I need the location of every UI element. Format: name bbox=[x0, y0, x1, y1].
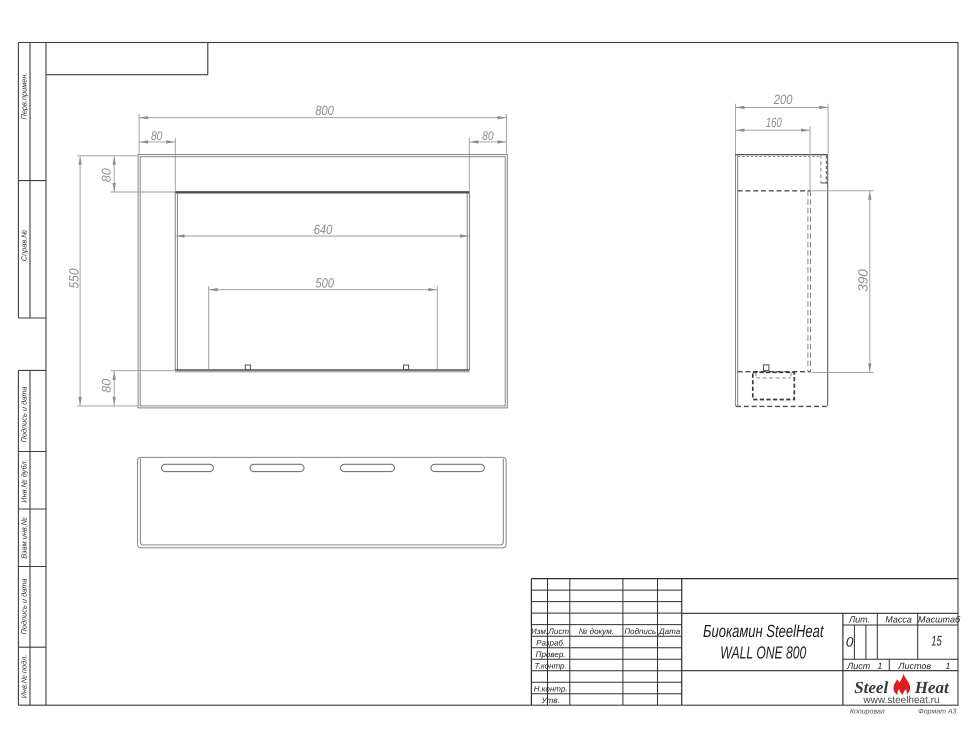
svg-text:Масштаб: Масштаб bbox=[918, 615, 961, 625]
svg-text:Дата: Дата bbox=[658, 627, 681, 636]
svg-text:Масса: Масса bbox=[885, 615, 912, 625]
svg-text:Подпись и дата: Подпись и дата bbox=[20, 387, 29, 443]
svg-text:Копировал: Копировал bbox=[850, 709, 885, 716]
svg-text:Т.контр.: Т.контр. bbox=[534, 661, 566, 670]
svg-text:Изм.: Изм. bbox=[531, 627, 548, 636]
svg-text:80: 80 bbox=[99, 168, 113, 182]
svg-text:Перв.примен.: Перв.примен. bbox=[20, 72, 29, 119]
svg-text:80: 80 bbox=[99, 379, 113, 393]
svg-text:800: 800 bbox=[315, 103, 334, 118]
svg-text:Инв.№ подл.: Инв.№ подл. bbox=[20, 655, 29, 699]
svg-text:80: 80 bbox=[482, 129, 494, 143]
svg-text:Лист: Лист bbox=[846, 661, 871, 671]
svg-text:Взам.инв.№: Взам.инв.№ bbox=[20, 517, 29, 559]
svg-text:Формат А3: Формат А3 bbox=[918, 709, 956, 716]
svg-text:390: 390 bbox=[856, 269, 871, 292]
svg-text:550: 550 bbox=[66, 268, 81, 288]
svg-text:Подпись и дата: Подпись и дата bbox=[20, 579, 29, 635]
svg-text:WALL ONE 800: WALL ONE 800 bbox=[720, 643, 806, 663]
svg-text:www.steelheat.ru: www.steelheat.ru bbox=[862, 695, 939, 706]
svg-text:Провер.: Провер. bbox=[536, 650, 566, 659]
svg-text:80: 80 bbox=[151, 129, 163, 143]
svg-text:Биокамин SteelHeat: Биокамин SteelHeat bbox=[703, 621, 824, 641]
svg-text:Н.контр.: Н.контр. bbox=[534, 684, 568, 693]
svg-text:Справ.№: Справ.№ bbox=[20, 230, 29, 262]
svg-text:200: 200 bbox=[773, 92, 793, 107]
svg-text:Инв.№ дубл.: Инв.№ дубл. bbox=[20, 459, 29, 502]
svg-text:15: 15 bbox=[931, 633, 942, 649]
svg-text:Листов: Листов bbox=[897, 661, 931, 671]
svg-text:№ докум.: № докум. bbox=[579, 627, 614, 636]
svg-text:640: 640 bbox=[314, 222, 333, 237]
svg-text:0: 0 bbox=[846, 635, 854, 650]
svg-text:Лист: Лист bbox=[547, 627, 569, 636]
svg-text:Лит.: Лит. bbox=[848, 615, 870, 625]
svg-text:Утв.: Утв. bbox=[541, 696, 560, 705]
svg-text:500: 500 bbox=[315, 276, 334, 291]
svg-text:1: 1 bbox=[945, 661, 950, 671]
svg-text:1: 1 bbox=[877, 661, 882, 671]
svg-text:Подпись: Подпись bbox=[624, 627, 656, 636]
svg-text:160: 160 bbox=[766, 115, 782, 130]
svg-text:Разраб.: Разраб. bbox=[536, 638, 565, 647]
